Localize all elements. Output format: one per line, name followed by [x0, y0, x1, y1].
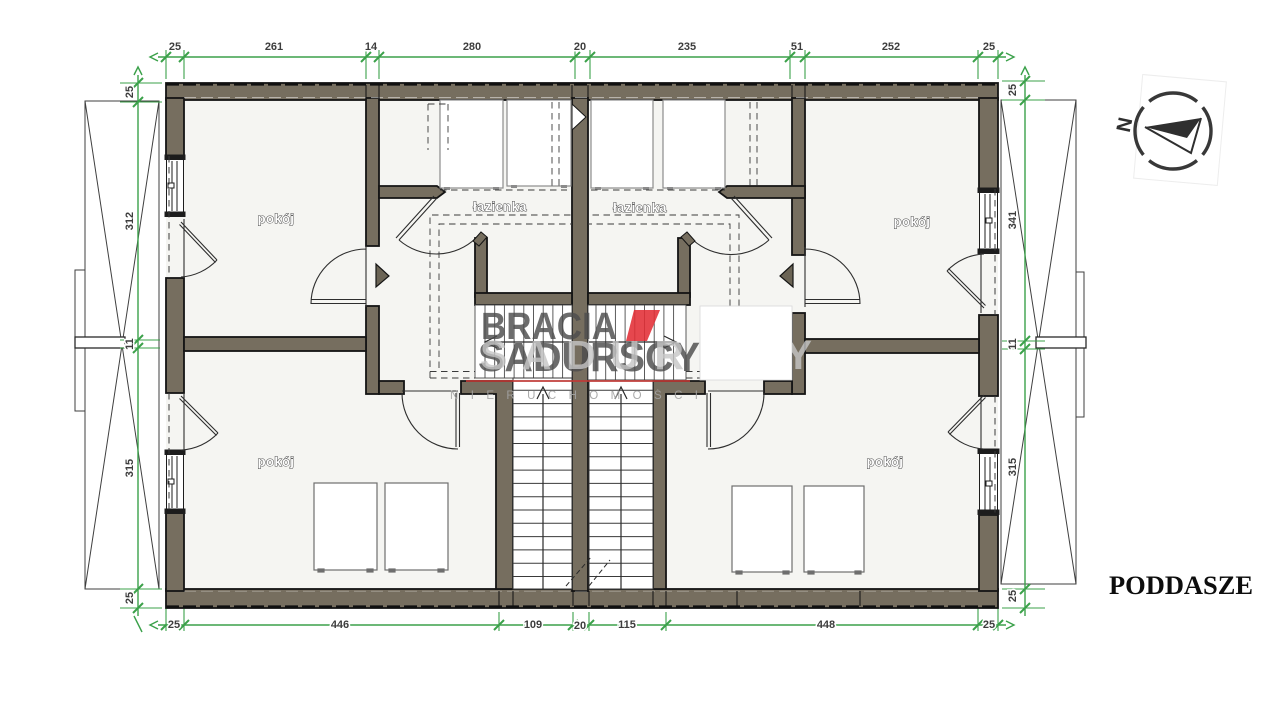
- svg-text:łazienka: łazienka: [473, 199, 527, 214]
- svg-text:PODDASZE: PODDASZE: [1109, 571, 1253, 600]
- svg-text:25: 25: [983, 619, 995, 631]
- svg-text:446: 446: [331, 619, 349, 631]
- svg-text:NIERUCHOMOŚCI: NIERUCHOMOŚCI: [450, 389, 698, 402]
- svg-text:115: 115: [618, 619, 636, 631]
- svg-text:448: 448: [817, 619, 835, 631]
- svg-text:280: 280: [463, 41, 481, 53]
- svg-text:315: 315: [1007, 458, 1019, 476]
- svg-text:łazienka: łazienka: [613, 200, 667, 215]
- svg-text:25: 25: [1007, 84, 1019, 96]
- svg-text:109: 109: [524, 619, 542, 631]
- svg-text:20: 20: [574, 620, 586, 632]
- svg-text:51: 51: [791, 41, 803, 53]
- svg-text:11: 11: [1007, 338, 1019, 350]
- svg-text:pokój: pokój: [258, 211, 295, 226]
- svg-text:11: 11: [124, 338, 136, 350]
- svg-text:25: 25: [168, 619, 180, 631]
- svg-text:25: 25: [169, 41, 181, 53]
- svg-text:25: 25: [1007, 590, 1019, 602]
- svg-text:25: 25: [983, 41, 995, 53]
- svg-text:315: 315: [124, 459, 136, 477]
- svg-text:pokój: pokój: [867, 454, 904, 469]
- svg-text:252: 252: [882, 41, 900, 53]
- svg-text:341: 341: [1007, 211, 1019, 229]
- svg-text:25: 25: [124, 86, 136, 98]
- svg-text:261: 261: [265, 41, 283, 53]
- svg-text:pokój: pokój: [894, 214, 931, 229]
- svg-text:20: 20: [574, 41, 586, 53]
- svg-text:235: 235: [678, 41, 696, 53]
- svg-text:312: 312: [124, 212, 136, 230]
- svg-text:pokój: pokój: [258, 454, 295, 469]
- svg-text:25: 25: [124, 592, 136, 604]
- svg-text:14: 14: [365, 41, 378, 53]
